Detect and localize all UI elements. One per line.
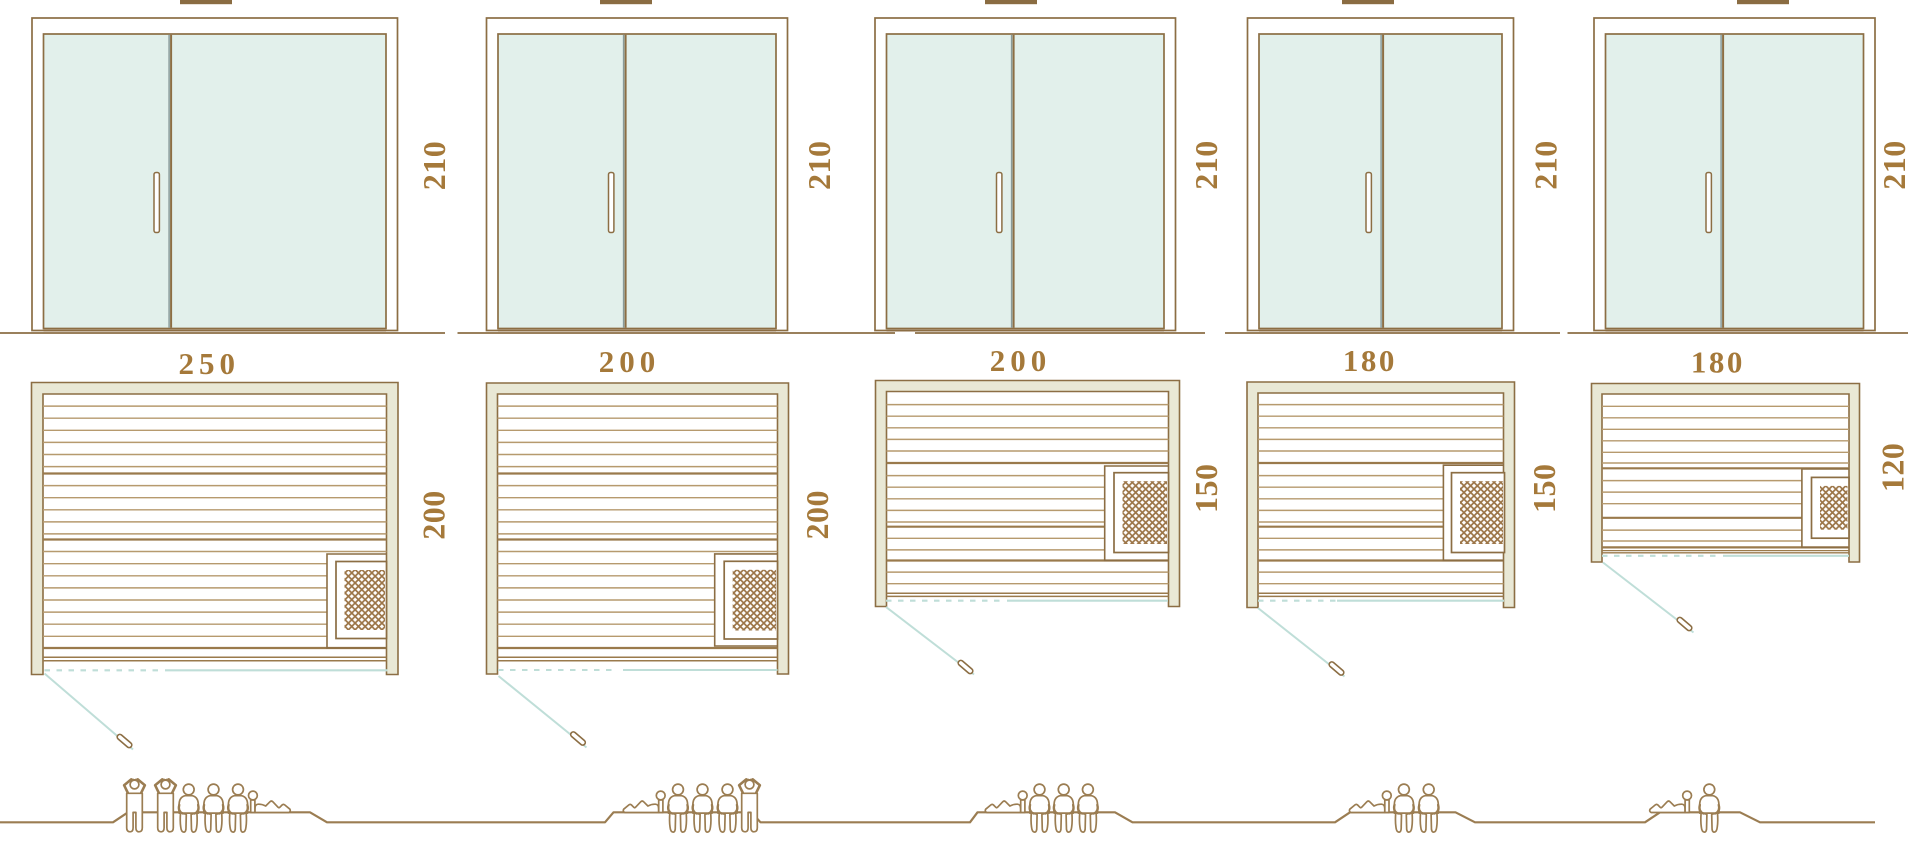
svg-text:150: 150 xyxy=(1188,464,1224,514)
svg-text:210: 210 xyxy=(1188,140,1224,190)
svg-text:200: 200 xyxy=(990,343,1052,378)
svg-text:120: 120 xyxy=(1875,443,1911,493)
svg-text:250: 250 xyxy=(179,346,241,381)
svg-text:180: 180 xyxy=(1343,343,1397,378)
svg-text:210: 210 xyxy=(1876,140,1912,190)
svg-text:210: 210 xyxy=(416,141,452,191)
svg-text:200: 200 xyxy=(416,490,452,540)
svg-text:200: 200 xyxy=(799,490,835,540)
svg-text:180: 180 xyxy=(1691,345,1745,380)
svg-text:210: 210 xyxy=(801,140,837,190)
svg-text:210: 210 xyxy=(1528,140,1564,190)
svg-text:150: 150 xyxy=(1526,464,1562,514)
svg-text:200: 200 xyxy=(599,344,661,379)
